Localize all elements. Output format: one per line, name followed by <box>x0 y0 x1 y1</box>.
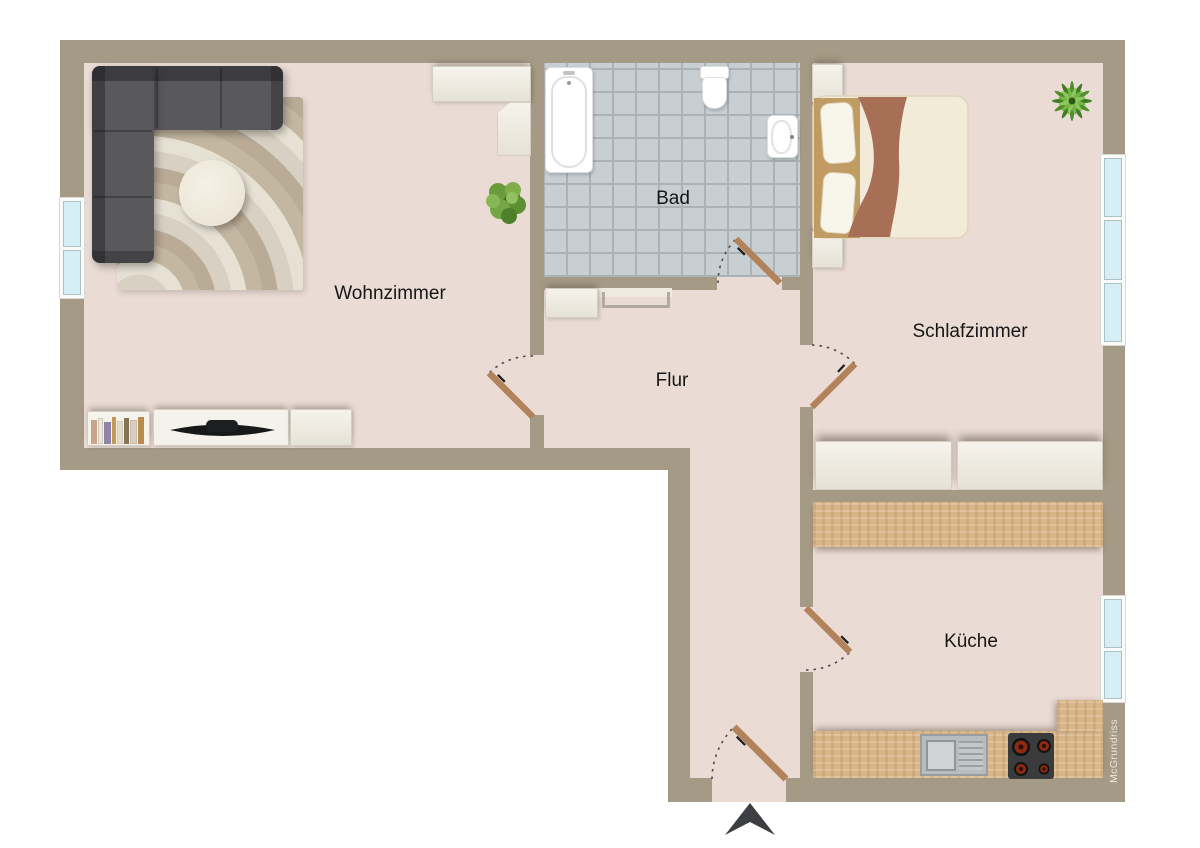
book <box>91 420 97 444</box>
wall-bath-bottom-right <box>782 277 813 290</box>
window-livingroom-left <box>59 197 85 299</box>
window-kitchen-right <box>1100 595 1126 703</box>
book <box>124 418 129 444</box>
label-schlafzimmer: Schlafzimmer <box>912 321 1027 343</box>
washbasin-faucet <box>790 135 794 139</box>
sofa-seam <box>94 196 152 198</box>
wall-bedroom-kitchen <box>800 490 1103 502</box>
toilet-bowl <box>702 77 727 109</box>
book <box>138 417 144 444</box>
book <box>130 420 137 444</box>
washbasin <box>767 115 798 158</box>
label-bad: Bad <box>656 188 690 210</box>
wall-livingroom-bottom <box>60 448 690 470</box>
book <box>98 418 103 444</box>
sideboard <box>290 409 352 446</box>
nightstand-top <box>812 64 843 102</box>
wall-bath-bedroom <box>800 63 813 345</box>
wall-bottom-right <box>786 778 1125 802</box>
sofa-armrest-right <box>271 66 283 130</box>
window-pane <box>1104 651 1122 700</box>
tv-lowboard <box>153 409 289 446</box>
wardrobe-left <box>815 441 952 490</box>
hall-cabinet <box>545 288 598 318</box>
window-pane <box>1104 599 1122 648</box>
label-wohnzimmer: Wohnzimmer <box>334 283 446 305</box>
kitchen-sink-unit <box>920 734 988 776</box>
kitchen-counter-top <box>813 502 1103 547</box>
entrance-arrow <box>725 803 775 835</box>
book <box>104 422 111 444</box>
book <box>117 421 123 444</box>
wall-corridor-kitchen <box>800 672 813 778</box>
kitchen-counter-corner <box>1057 700 1103 731</box>
book <box>112 417 116 444</box>
corner-cabinet-top <box>432 66 531 102</box>
wall-hall-bedroom-stub <box>800 407 813 607</box>
wardrobe-right <box>957 441 1103 490</box>
window-pane <box>1104 220 1122 279</box>
sofa-seam <box>220 68 222 128</box>
exterior-notch <box>0 470 668 848</box>
washbasin-bowl <box>771 120 792 154</box>
bathtub <box>545 67 593 173</box>
wall-entrance-left-stub <box>668 778 712 802</box>
nightstand-bottom <box>812 231 843 268</box>
wall-top <box>60 40 1125 63</box>
sink-drainer <box>959 741 983 770</box>
window-pane <box>1104 283 1122 342</box>
sofa-armrest-bottom <box>92 251 154 263</box>
window-pane <box>63 250 81 296</box>
wall-living-hall-upper <box>530 63 544 355</box>
window-pane <box>1104 158 1122 217</box>
watermark: McGrundriss <box>1108 719 1120 783</box>
corner-cabinet-side <box>497 102 531 156</box>
corner-sofa <box>92 66 283 263</box>
sofa-seam <box>94 130 152 132</box>
sofa-back-left <box>92 66 105 263</box>
floor-plan: Wohnzimmer Bad Schlafzimmer Flur Küche M… <box>0 0 1200 848</box>
label-flur: Flur <box>656 370 689 392</box>
stove <box>1008 733 1054 779</box>
bathtub-faucet <box>563 71 575 75</box>
bathtub-basin <box>551 76 587 168</box>
wall-living-hall-stub <box>530 415 544 448</box>
books <box>91 417 146 444</box>
label-kueche: Küche <box>944 631 998 653</box>
window-pane <box>63 201 81 247</box>
coffee-table <box>179 160 245 226</box>
sofa-seam <box>156 68 158 128</box>
sink-basin <box>926 740 956 771</box>
window-bedroom-right <box>1100 154 1126 346</box>
hall-wall-shelf <box>602 292 670 308</box>
bathtub-drain <box>567 81 571 85</box>
wall-corridor-left <box>668 448 690 800</box>
sofa-back-top <box>92 66 283 81</box>
